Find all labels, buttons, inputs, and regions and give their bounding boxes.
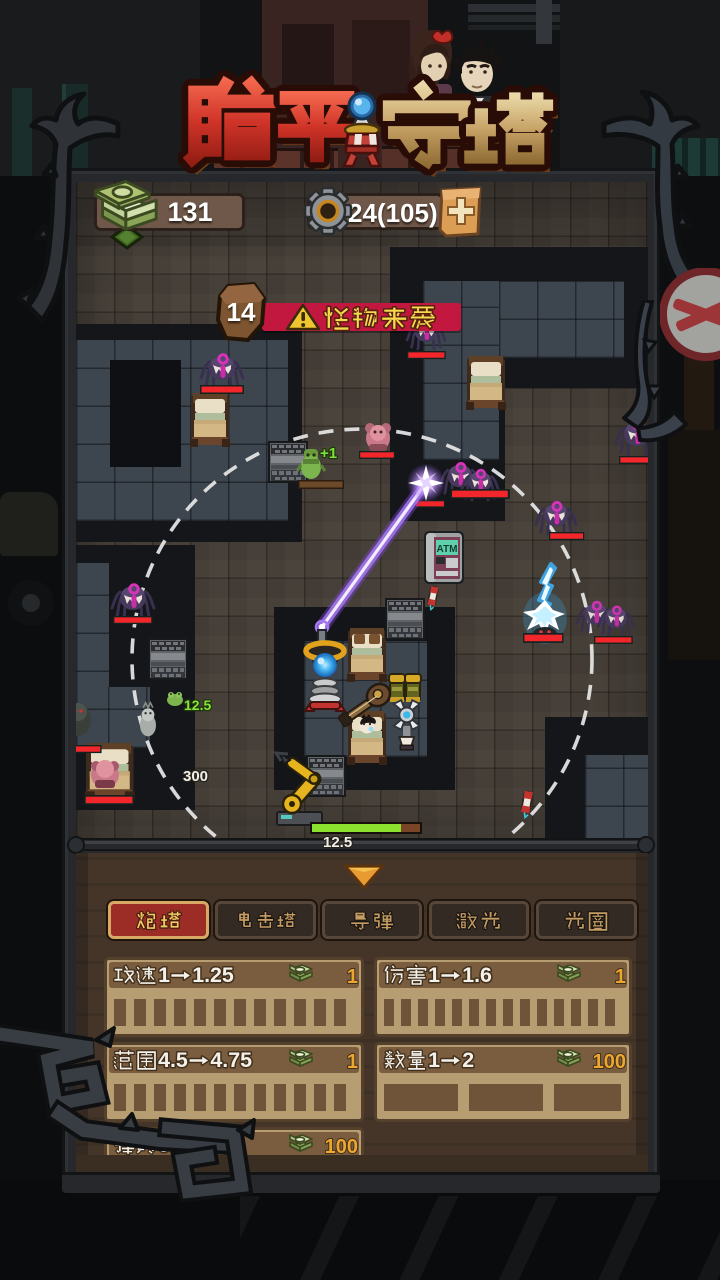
svg-text:1: 1: [428, 963, 440, 987]
svg-text:ATM: ATM: [437, 544, 458, 555]
svg-text:1: 1: [428, 1048, 440, 1072]
svg-text:300: 300: [183, 768, 208, 785]
svg-text:1.6: 1.6: [462, 963, 492, 987]
svg-text:2: 2: [462, 1048, 474, 1072]
svg-text:100: 100: [593, 1051, 626, 1073]
svg-text:1.25: 1.25: [192, 963, 234, 987]
svg-text:1: 1: [347, 966, 358, 988]
svg-text:1: 1: [615, 966, 626, 988]
svg-text:1: 1: [347, 1051, 358, 1073]
svg-text:+1: +1: [320, 445, 337, 462]
svg-text:1: 1: [158, 963, 170, 987]
svg-text:12.5: 12.5: [184, 697, 211, 713]
